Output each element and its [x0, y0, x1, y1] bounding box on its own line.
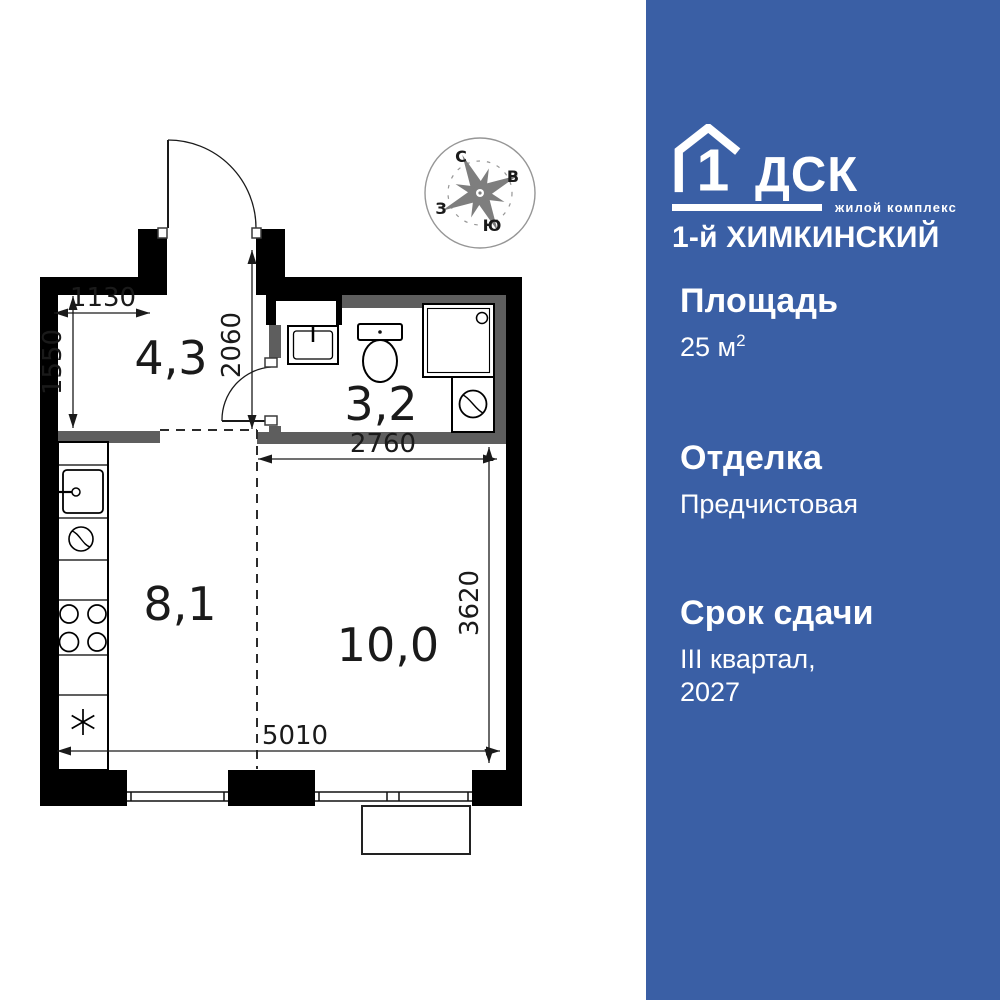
finish-value: Предчистовая	[680, 488, 984, 521]
logo-tagline: жилой комплекс	[835, 200, 957, 215]
dim-label-2760: 2760	[350, 429, 416, 459]
compass-south-label: Ю	[483, 216, 502, 235]
dim-label-5010: 5010	[262, 721, 328, 751]
logo-underline-bar	[672, 204, 822, 211]
jamb	[158, 228, 167, 238]
logo-house-number: 1	[696, 138, 729, 194]
wall-bottom-a	[40, 770, 127, 806]
info-panel: 1 ДСК жилой комплекс 1-й ХИМКИНСКИЙ Площ…	[646, 0, 1000, 1000]
section-completion: Срок сдачи III квартал, 2027	[680, 594, 984, 709]
toilet	[358, 324, 402, 382]
bath-wall-left-upper	[269, 325, 281, 358]
bath-wall-right	[494, 295, 506, 444]
completion-value: III квартал, 2027	[680, 643, 984, 709]
room-label-bathroom: 3,2	[344, 377, 417, 431]
compass-west-label: З	[435, 199, 446, 218]
section-finish: Отделка Предчистовая	[680, 439, 984, 521]
wall-bottom-b	[228, 770, 315, 806]
section-area: Площадь 25 м2	[680, 282, 984, 364]
dimension-3620: 3620	[455, 447, 494, 763]
compass-east-label: В	[507, 167, 519, 186]
entry-nook-left	[138, 229, 167, 295]
vent-shaft-inner	[276, 301, 336, 325]
bathroom-sink	[288, 326, 338, 364]
brand-letters: ДСК	[755, 156, 858, 194]
kitchen-counter	[58, 442, 108, 770]
dim-label-1130: 1130	[70, 283, 136, 313]
jamb	[252, 228, 261, 238]
room-labels: 4,3 3,2 8,1 10,0	[134, 331, 439, 672]
dim-label-3620: 3620	[455, 570, 485, 636]
complex-name: 1-й ХИМКИНСКИЙ	[672, 221, 957, 255]
completion-quarter: III квартал,	[680, 643, 984, 676]
kitchen-window	[127, 792, 228, 801]
room-label-hallway: 4,3	[134, 331, 207, 385]
area-value: 25 м2	[680, 331, 984, 364]
room-window	[315, 792, 472, 801]
entrance-door	[168, 140, 256, 228]
dimension-5010: 5010	[57, 721, 500, 756]
completion-label: Срок сдачи	[680, 594, 984, 633]
room-label-kitchen: 8,1	[143, 577, 216, 631]
brand-logo: 1 ДСК жилой комплекс 1-й ХИМКИНСКИЙ	[672, 124, 957, 255]
area-label: Площадь	[680, 282, 984, 321]
wall-bottom-c	[472, 770, 522, 806]
dimension-2060: 2060	[217, 250, 257, 429]
jamb	[265, 416, 277, 425]
jamb	[265, 358, 277, 367]
area-value-sup: 2	[736, 331, 745, 350]
compass-north-label: С	[455, 147, 467, 166]
finish-label: Отделка	[680, 439, 984, 478]
room-label-living-room: 10,0	[337, 618, 439, 672]
area-value-number: 25 м	[680, 332, 736, 362]
compass-rose-icon: С В З Ю	[424, 137, 536, 249]
dim-label-1550: 1550	[38, 329, 68, 395]
completion-year: 2027	[680, 676, 984, 709]
wall-right	[506, 277, 522, 806]
dim-label-2060: 2060	[217, 312, 247, 378]
shower-cabin	[423, 304, 494, 377]
floorplan-card: 1130 1550 2060 2760	[0, 0, 1000, 1000]
entrance-door-arc	[168, 140, 256, 228]
washing-machine	[452, 377, 494, 432]
kitchen-sink	[58, 470, 103, 513]
balcony-ledge	[362, 806, 470, 854]
logo-house-icon: 1	[672, 124, 750, 194]
